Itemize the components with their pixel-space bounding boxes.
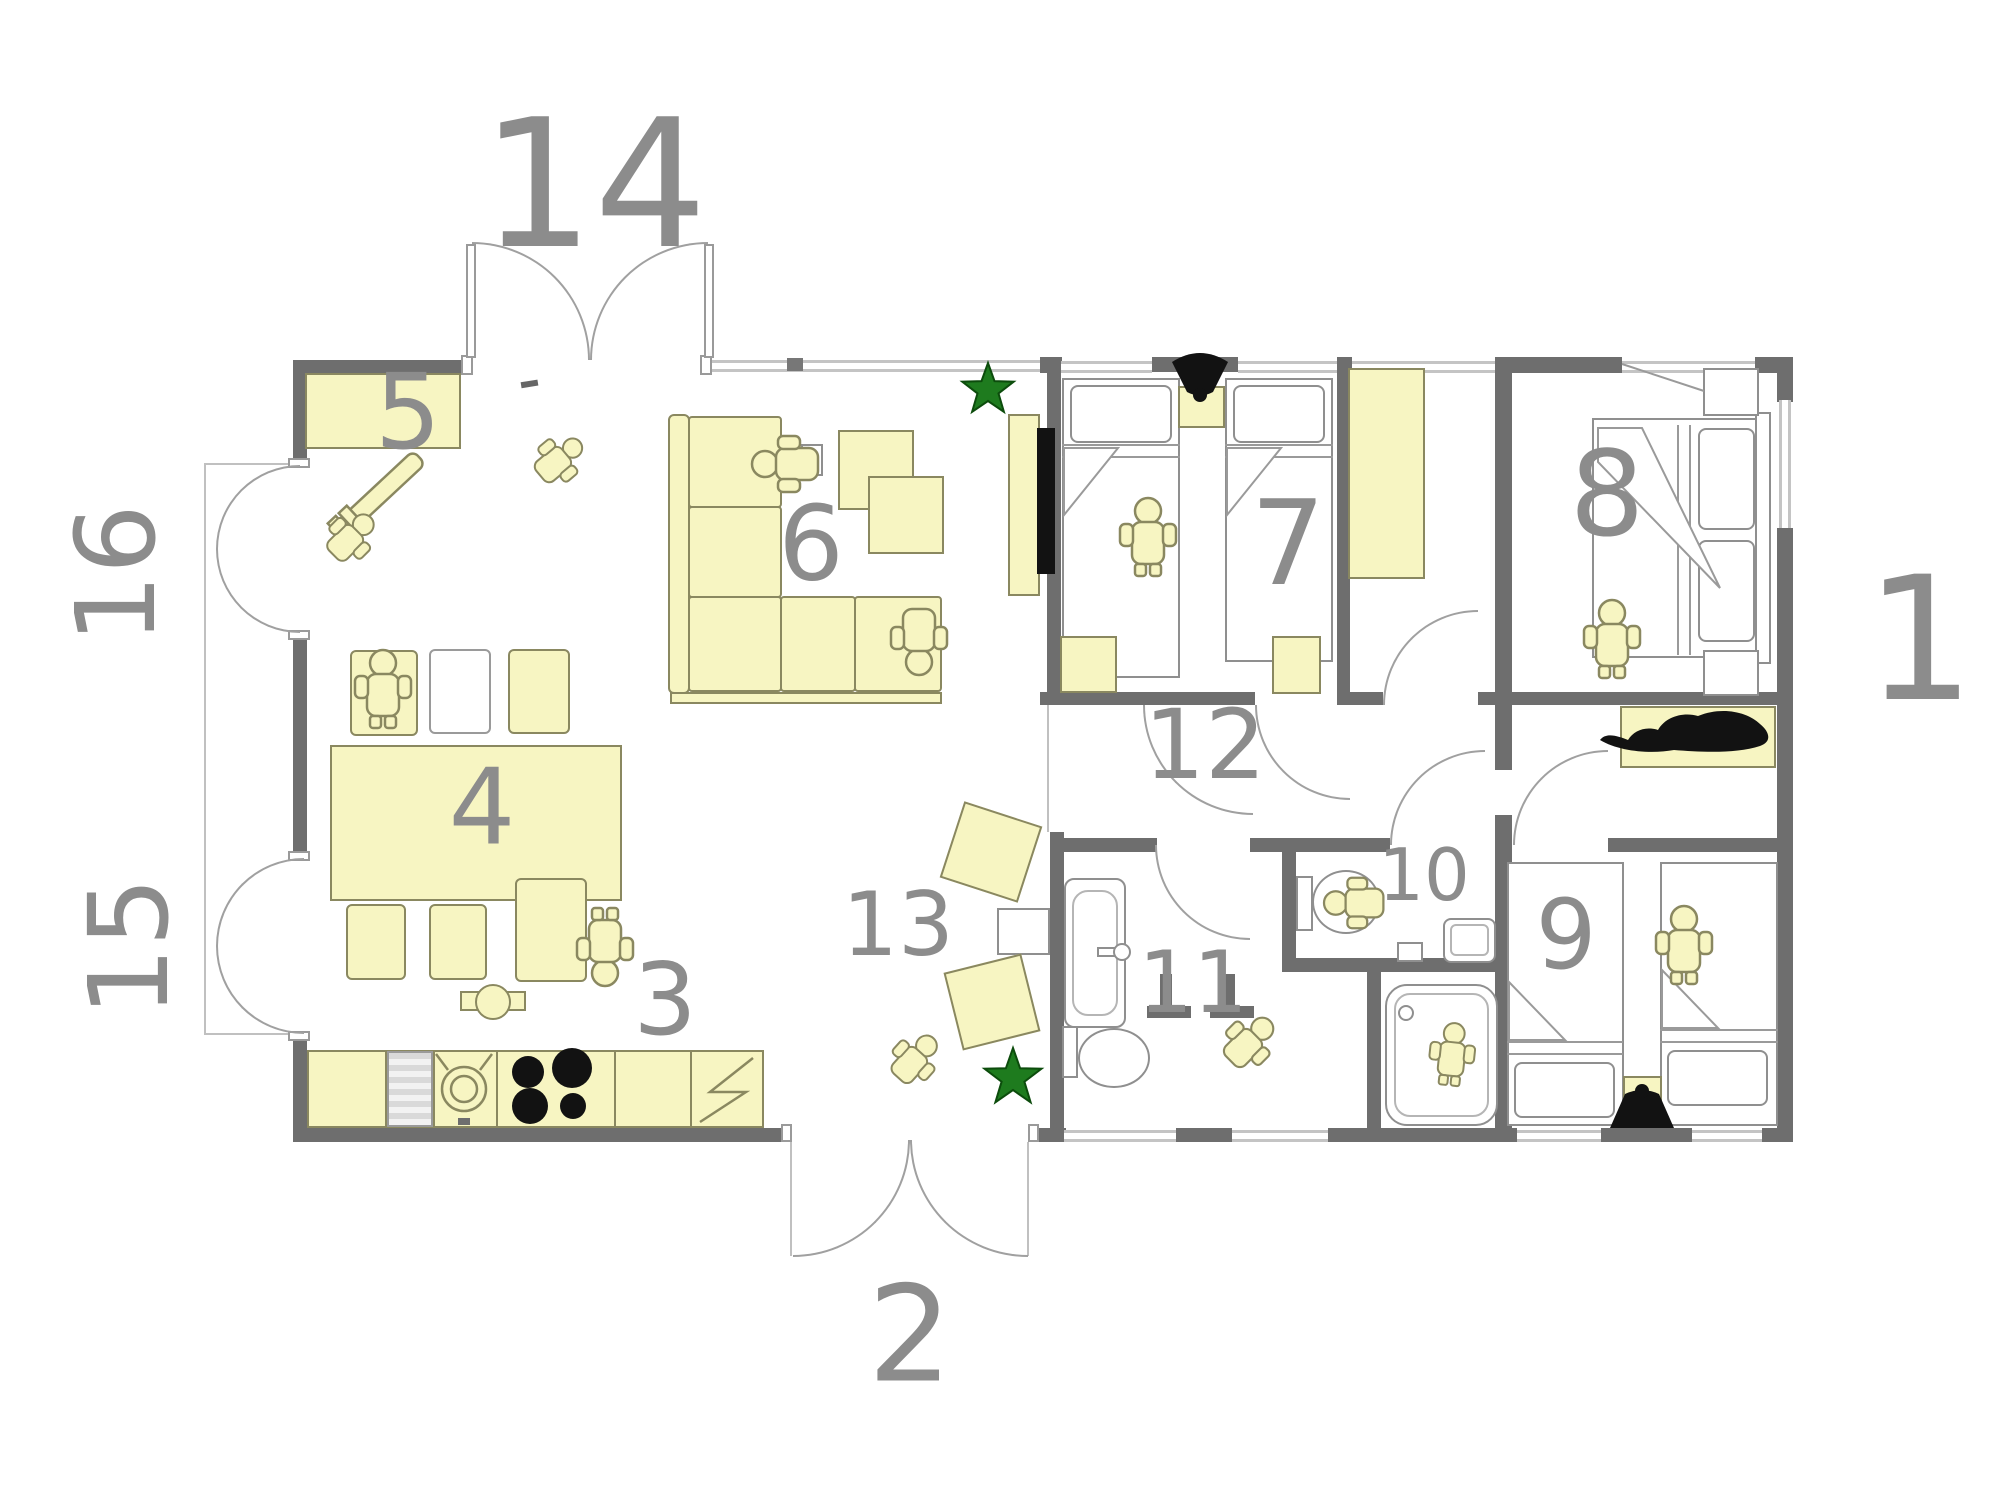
wall-corridor-north bbox=[1350, 692, 1383, 705]
bathtub-inner bbox=[1394, 993, 1489, 1117]
door-arc-16-top bbox=[216, 465, 300, 549]
wall-tub-west bbox=[1367, 972, 1381, 1135]
kitchen-counter bbox=[307, 1050, 764, 1128]
sofa-backrest bbox=[668, 414, 690, 694]
room-label-1: 1 bbox=[1865, 554, 1974, 726]
door-arc-bathroom bbox=[1155, 845, 1250, 940]
door-arc-room7 bbox=[1255, 705, 1350, 800]
sofa-tray-table bbox=[801, 444, 823, 476]
pillow bbox=[1667, 1050, 1768, 1106]
wall-room9-north bbox=[1608, 838, 1777, 852]
sofa-seat bbox=[688, 506, 782, 598]
hall-cabinet bbox=[944, 954, 1041, 1051]
nightstand bbox=[1060, 636, 1117, 693]
counter-divider bbox=[496, 1052, 498, 1126]
tv-screen bbox=[1037, 428, 1055, 574]
wall-bottom bbox=[1176, 1128, 1232, 1142]
pillow bbox=[1233, 385, 1325, 443]
dining-chair bbox=[429, 904, 487, 980]
window-room7-b bbox=[1238, 361, 1337, 373]
door-jamb bbox=[1028, 1124, 1039, 1142]
wall-bath-north bbox=[1250, 838, 1390, 852]
terrace-line bbox=[204, 463, 295, 465]
room-label-6: 6 bbox=[778, 494, 844, 597]
person-icon bbox=[881, 1023, 950, 1092]
counter-divider bbox=[614, 1052, 616, 1126]
toilet-bowl bbox=[1312, 870, 1380, 934]
room-label-11: 11 bbox=[1138, 940, 1247, 1026]
toilet-bowl bbox=[1078, 1028, 1150, 1088]
dining-chair bbox=[346, 904, 406, 980]
window-living bbox=[712, 360, 1042, 372]
bath-sink-basin bbox=[1072, 890, 1118, 1016]
cat-shelf bbox=[1620, 706, 1776, 768]
wall-box bbox=[1397, 942, 1423, 962]
room-label-2: 2 bbox=[868, 1270, 953, 1403]
porch-line bbox=[790, 1142, 792, 1256]
nightstand bbox=[1272, 636, 1321, 694]
nightstand bbox=[1178, 386, 1225, 428]
wall-closet-room8 bbox=[1495, 360, 1512, 705]
floor-plan: 1 2 3 4 5 6 7 8 9 10 11 12 13 14 15 16 bbox=[0, 0, 2000, 1500]
wall-bath-west bbox=[1050, 832, 1064, 1132]
room-label-7: 7 bbox=[1250, 484, 1325, 602]
pillow bbox=[1698, 428, 1755, 530]
room-label-9: 9 bbox=[1535, 887, 1596, 983]
room-label-4: 4 bbox=[449, 756, 516, 861]
room-label-3: 3 bbox=[633, 950, 697, 1050]
window-room9-a bbox=[1517, 1130, 1601, 1142]
door-arc-room8 bbox=[1383, 610, 1478, 705]
door-arc-wc bbox=[1390, 750, 1485, 845]
wall-left bbox=[293, 633, 307, 858]
tv-cabinet bbox=[1008, 414, 1040, 596]
door-jamb bbox=[781, 1124, 792, 1142]
wall-top bbox=[1495, 357, 1622, 373]
dining-chair bbox=[429, 649, 491, 734]
nightstand bbox=[1703, 368, 1759, 416]
door-arc-room9 bbox=[1513, 750, 1608, 845]
window-bath-south-b bbox=[1232, 1130, 1328, 1142]
counter-divider bbox=[690, 1052, 692, 1126]
wc-sink-basin bbox=[1450, 924, 1489, 956]
room-label-8: 8 bbox=[1569, 435, 1644, 553]
person-icon bbox=[317, 502, 386, 571]
door-arc-15-top bbox=[216, 858, 304, 946]
wall-wc-west bbox=[1282, 845, 1296, 972]
dining-chair bbox=[350, 650, 418, 736]
terrace-line bbox=[204, 1033, 295, 1035]
sofa-seat bbox=[780, 596, 856, 692]
door-arc-entrance-right bbox=[910, 1140, 1028, 1257]
door-arc-entrance-left bbox=[793, 1140, 910, 1257]
headboard bbox=[1755, 412, 1771, 664]
sofa-seat bbox=[688, 596, 782, 692]
sofa-seat bbox=[688, 416, 782, 508]
pillow bbox=[1514, 1062, 1615, 1118]
person-icon bbox=[526, 425, 595, 493]
wall-bottom bbox=[1762, 1128, 1793, 1142]
nightstand bbox=[1703, 650, 1759, 696]
wall-bottom bbox=[1328, 1128, 1517, 1142]
room-label-14: 14 bbox=[481, 96, 708, 274]
side-table bbox=[868, 476, 944, 554]
toilet-tank bbox=[1062, 1026, 1078, 1078]
dining-chair bbox=[515, 878, 587, 982]
nightstand bbox=[1623, 1076, 1662, 1126]
room-label-5: 5 bbox=[375, 360, 441, 464]
wall-left bbox=[293, 1034, 307, 1142]
hall-cabinet bbox=[940, 801, 1043, 902]
terrace-line bbox=[204, 463, 206, 1035]
window-bath-south bbox=[1064, 1130, 1176, 1142]
pillow bbox=[1070, 385, 1172, 443]
plant-star-icon bbox=[985, 1048, 1042, 1102]
wardrobe bbox=[1348, 368, 1425, 579]
window-room7-a bbox=[1060, 361, 1152, 373]
wall-right bbox=[1777, 528, 1793, 1142]
room-label-16: 16 bbox=[61, 504, 171, 644]
toilet-tank bbox=[1296, 876, 1313, 931]
sofa-base bbox=[670, 692, 942, 704]
sofa-seat bbox=[854, 596, 942, 692]
door-arc-15-bottom bbox=[216, 946, 304, 1034]
window-room8-east bbox=[1779, 400, 1791, 530]
room-label-15: 15 bbox=[74, 877, 184, 1017]
hall-box bbox=[997, 908, 1050, 955]
wall-vestibule-west bbox=[1495, 705, 1512, 770]
room-label-12: 12 bbox=[1144, 697, 1266, 793]
room-label-13: 13 bbox=[842, 881, 954, 969]
pillow bbox=[1698, 540, 1755, 642]
wall-bottom bbox=[1601, 1128, 1692, 1142]
wall-right bbox=[1777, 360, 1793, 402]
floor-transition-line bbox=[1047, 705, 1049, 832]
door-leaf-14 bbox=[466, 244, 476, 358]
dining-chair bbox=[508, 649, 570, 734]
kitchen-stool bbox=[475, 984, 511, 1020]
dishwasher bbox=[387, 1051, 433, 1127]
counter-divider bbox=[433, 1052, 435, 1126]
door-arc-16-bottom bbox=[216, 549, 300, 633]
wall-top bbox=[1152, 357, 1238, 372]
room-label-10: 10 bbox=[1378, 839, 1470, 911]
wall-mark bbox=[521, 380, 539, 389]
wall-bottom bbox=[293, 1128, 790, 1142]
window-room9-b bbox=[1692, 1130, 1762, 1142]
wall-bath-north bbox=[1050, 838, 1157, 852]
